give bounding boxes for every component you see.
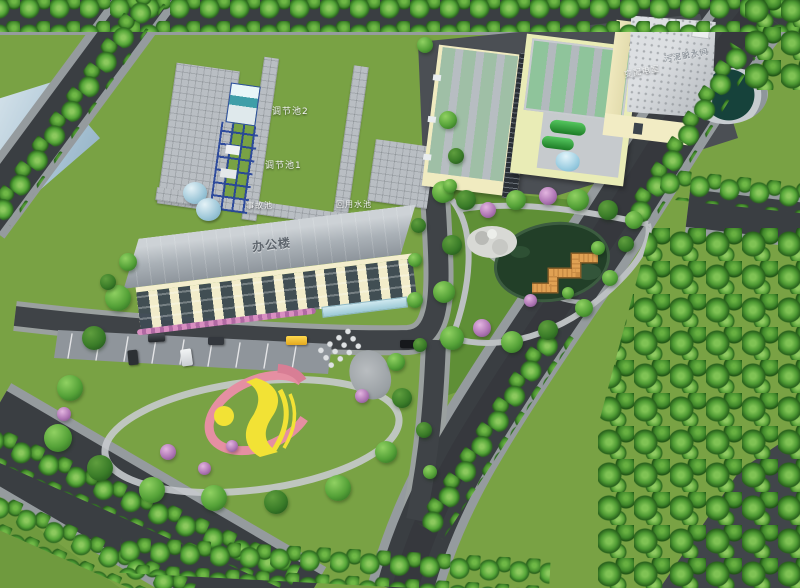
- forest-east: [598, 228, 800, 588]
- flower-shrub: [57, 407, 71, 421]
- tree: [442, 235, 462, 255]
- tree: [416, 422, 432, 438]
- label-pool1: 调节池1: [265, 158, 302, 171]
- tree: [567, 189, 589, 211]
- flower-shrub: [539, 187, 557, 205]
- tree: [423, 465, 437, 479]
- tree: [506, 190, 526, 210]
- tree: [562, 287, 574, 299]
- flower-shrub: [226, 440, 238, 452]
- tree: [325, 475, 351, 501]
- tree-row-left-road: [0, 0, 166, 226]
- tree: [413, 338, 427, 352]
- tree: [443, 179, 457, 193]
- label-reuse-pool: 回用水池: [336, 199, 372, 210]
- tree: [119, 253, 137, 271]
- tree: [618, 236, 634, 252]
- tree: [44, 424, 72, 452]
- tree: [417, 37, 433, 53]
- tree: [448, 148, 464, 164]
- tree: [82, 326, 106, 350]
- tree-row-main-road-lower: [416, 321, 574, 540]
- tree: [456, 190, 476, 210]
- tree: [408, 253, 422, 267]
- tree: [625, 211, 643, 229]
- tree-layer: [0, 0, 800, 588]
- tree: [387, 353, 405, 371]
- label-pool2: 调节池2: [272, 104, 309, 117]
- tree: [411, 218, 426, 233]
- tree: [375, 441, 397, 463]
- tree: [57, 375, 83, 401]
- flower-shrub: [160, 444, 176, 460]
- tree: [201, 485, 227, 511]
- tree: [392, 388, 412, 408]
- tree: [602, 270, 618, 286]
- tree: [100, 274, 116, 290]
- tree: [264, 490, 288, 514]
- plant-aerial-render: 调节池2 调节池1 事故池 回用水池 办公楼 污泥脱水间 变配电室: [0, 0, 800, 588]
- tree-row-branch: [659, 169, 800, 214]
- tree: [501, 331, 523, 353]
- flower-shrub: [524, 294, 537, 307]
- tree: [575, 299, 593, 317]
- tree: [139, 477, 165, 503]
- tree: [407, 292, 423, 308]
- flower-shrub: [198, 462, 211, 475]
- tree: [439, 111, 457, 129]
- tree: [591, 241, 605, 255]
- flower-shrub: [473, 319, 491, 337]
- tree: [538, 320, 558, 340]
- tree: [433, 281, 455, 303]
- flower-shrub: [355, 389, 369, 403]
- tree: [598, 200, 618, 220]
- tree: [440, 326, 464, 350]
- flower-shrub: [480, 202, 496, 218]
- label-accident-pool: 事故池: [246, 200, 273, 211]
- tree: [87, 455, 113, 481]
- forest-top-right: [745, 0, 800, 90]
